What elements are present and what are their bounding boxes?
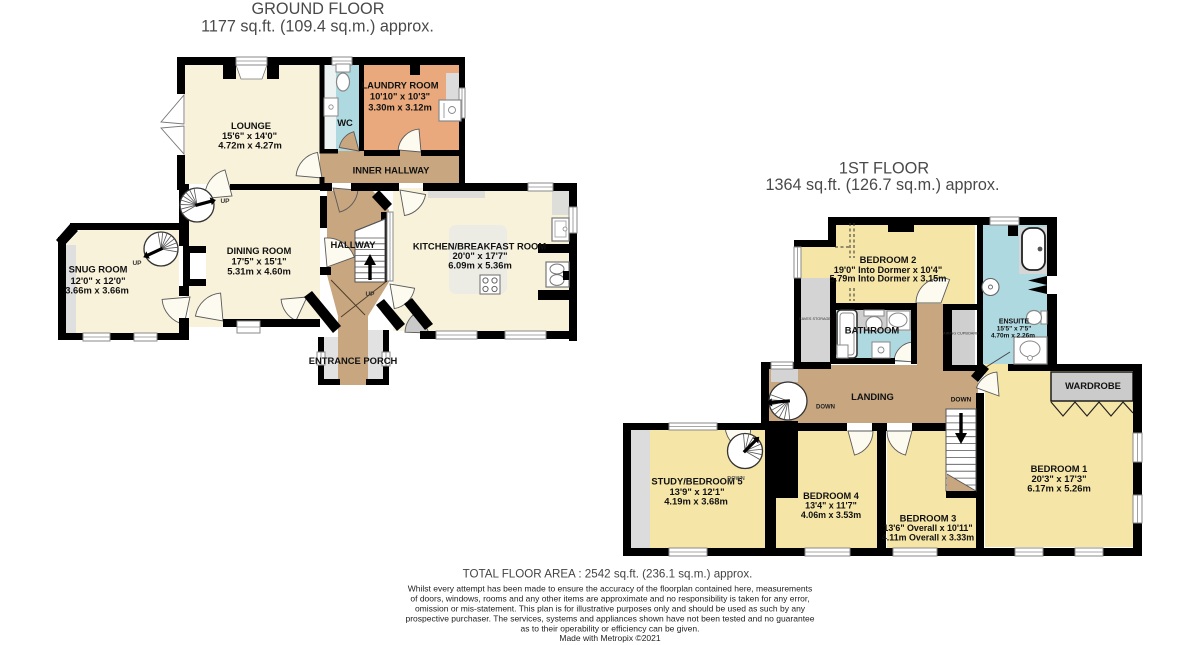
- svg-text:BEDROOM 4: BEDROOM 4: [803, 491, 860, 501]
- svg-text:4.11m Overall x 3.33m: 4.11m Overall x 3.33m: [882, 532, 974, 542]
- svg-text:HALLWAY: HALLWAY: [331, 239, 377, 250]
- svg-text:DOWN: DOWN: [727, 476, 744, 482]
- svg-text:3.30m x 3.12m: 3.30m x 3.12m: [368, 102, 432, 113]
- svg-text:INNER HALLWAY: INNER HALLWAY: [353, 165, 430, 176]
- svg-text:4.70m x 2.26m: 4.70m x 2.26m: [991, 333, 1035, 340]
- svg-text:prospective purchaser. The ser: prospective purchaser. The services, sys…: [405, 614, 814, 624]
- svg-text:13'4" x 11'7": 13'4" x 11'7": [805, 501, 857, 511]
- svg-text:Made with Metropix ©2021: Made with Metropix ©2021: [559, 633, 661, 643]
- svg-text:GROUND FLOOR: GROUND FLOOR: [252, 0, 385, 18]
- svg-text:10'10" x 10'3": 10'10" x 10'3": [370, 91, 430, 102]
- svg-text:6.09m x 5.36m: 6.09m x 5.36m: [448, 260, 512, 271]
- svg-text:BATHROOM: BATHROOM: [845, 325, 900, 336]
- svg-text:4.19m x 3.68m: 4.19m x 3.68m: [664, 496, 728, 507]
- svg-text:Whilst every attempt has been: Whilst every attempt has been made to en…: [408, 584, 812, 594]
- svg-text:DINING ROOM: DINING ROOM: [227, 245, 292, 256]
- svg-text:1177 sq.ft. (109.4 sq.m.) appr: 1177 sq.ft. (109.4 sq.m.) approx.: [201, 18, 434, 36]
- svg-text:TOTAL FLOOR AREA : 2542 sq.ft.: TOTAL FLOOR AREA : 2542 sq.ft. (236.1 sq…: [463, 568, 753, 581]
- svg-text:4.72m x 4.27m: 4.72m x 4.27m: [218, 139, 282, 150]
- svg-text:UP: UP: [365, 291, 375, 298]
- svg-text:as to their operability or eff: as to their operability or efficiency ca…: [521, 624, 700, 634]
- svg-text:WARDROBE: WARDROBE: [1065, 380, 1121, 391]
- svg-text:5.31m x 4.60m: 5.31m x 4.60m: [227, 266, 291, 277]
- svg-text:1364 sq.ft. (126.7 sq.m.) appr: 1364 sq.ft. (126.7 sq.m.) approx.: [766, 176, 1000, 194]
- svg-text:6.17m x 5.26m: 6.17m x 5.26m: [1027, 483, 1091, 494]
- svg-text:LAUNDRY ROOM: LAUNDRY ROOM: [361, 80, 438, 91]
- svg-text:BEDROOM 2: BEDROOM 2: [860, 254, 917, 265]
- svg-text:1ST FLOOR: 1ST FLOOR: [839, 160, 929, 178]
- svg-text:5.79m Into Dormer x 3.15m: 5.79m Into Dormer x 3.15m: [830, 274, 947, 284]
- svg-text:omission or mis-statement. Thi: omission or mis-statement. This plan is …: [415, 604, 806, 614]
- svg-text:DOWN: DOWN: [816, 405, 835, 411]
- svg-text:15'5" x 7'5": 15'5" x 7'5": [997, 326, 1032, 333]
- svg-text:ENTRANCE PORCH: ENTRANCE PORCH: [309, 355, 398, 366]
- svg-text:ENSUITE: ENSUITE: [999, 319, 1030, 326]
- svg-text:DOWN: DOWN: [951, 397, 972, 404]
- svg-text:SNUG ROOM: SNUG ROOM: [69, 264, 128, 275]
- svg-text:LANDING: LANDING: [851, 391, 894, 402]
- svg-text:3.66m x 3.66m: 3.66m x 3.66m: [65, 285, 129, 296]
- svg-text:WC: WC: [337, 117, 353, 128]
- svg-text:AIRING CUPBOARD: AIRING CUPBOARD: [943, 332, 979, 336]
- svg-text:4.06m x 3.53m: 4.06m x 3.53m: [801, 510, 861, 520]
- svg-text:EAVES STORAGE: EAVES STORAGE: [799, 317, 831, 321]
- svg-text:BEDROOM 3: BEDROOM 3: [900, 513, 957, 524]
- svg-text:of doors, windows, rooms and a: of doors, windows, rooms and any other i…: [410, 594, 809, 604]
- svg-text:UP: UP: [132, 260, 142, 267]
- svg-text:13'6" Overall x 10'11": 13'6" Overall x 10'11": [883, 523, 972, 533]
- svg-text:UP: UP: [220, 198, 230, 205]
